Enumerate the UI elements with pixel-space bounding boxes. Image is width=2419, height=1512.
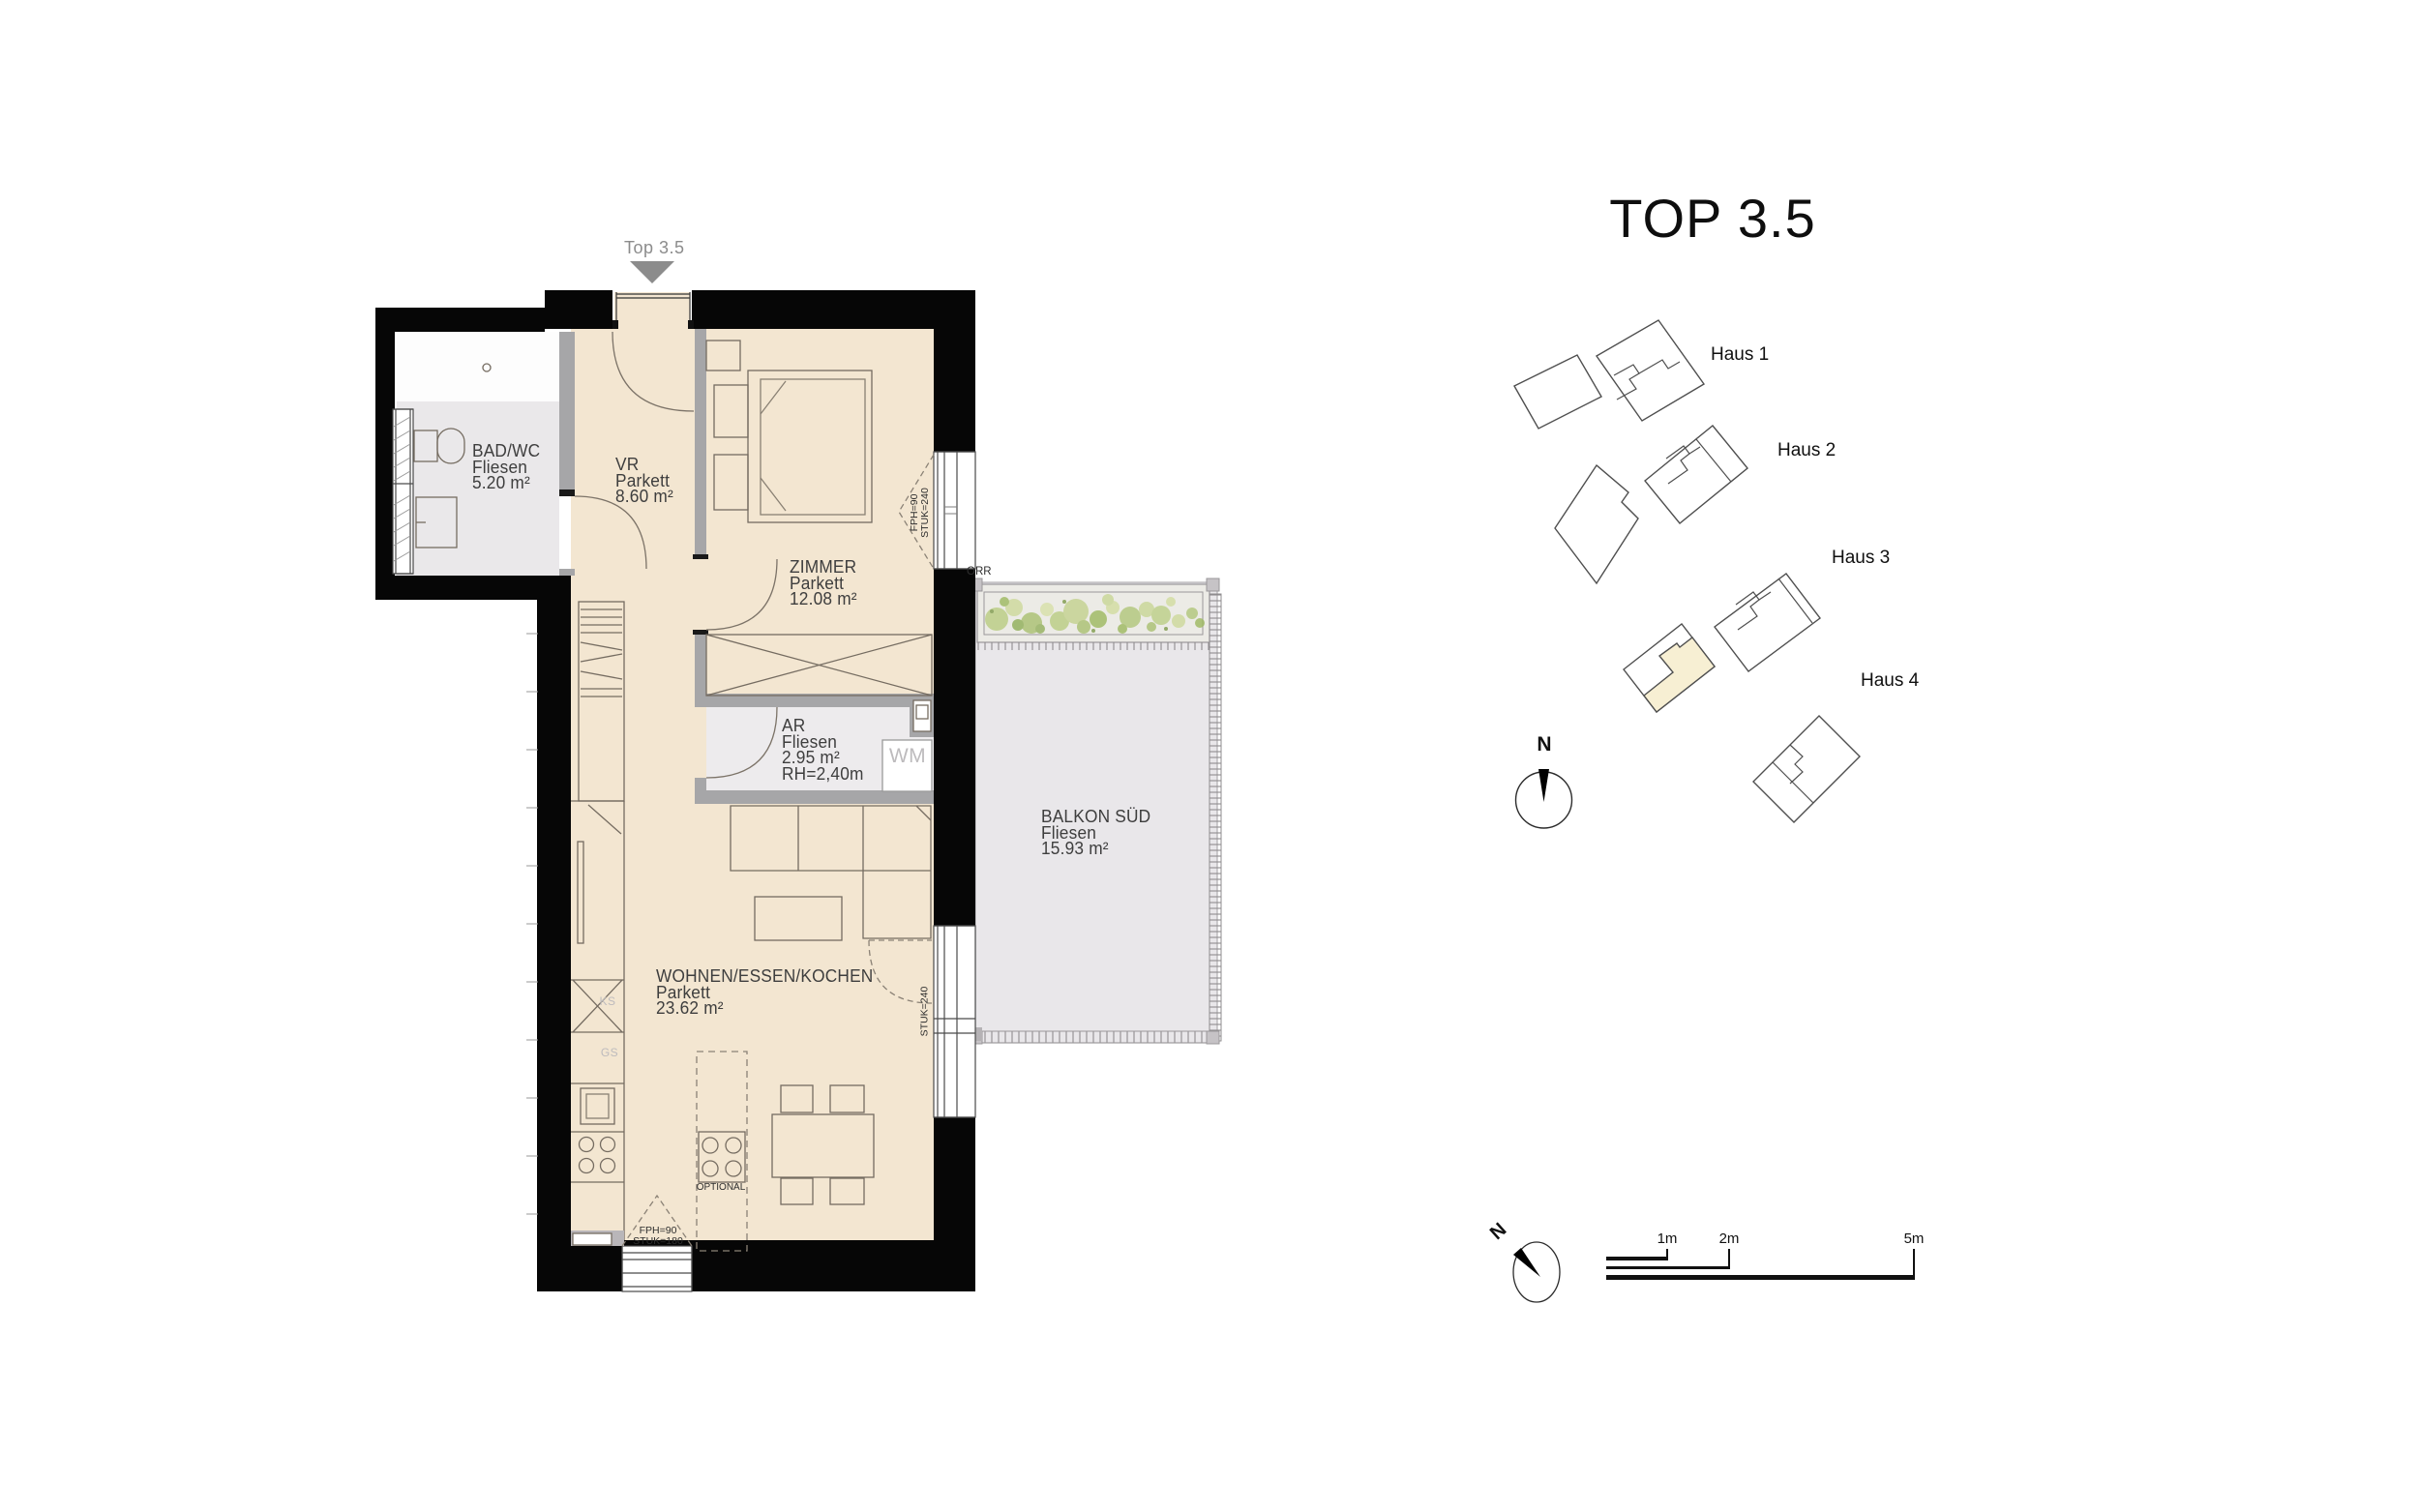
haus1-label: Haus 1 (1711, 344, 1769, 366)
room-area: 23.62 m² (656, 1000, 873, 1017)
site-building-haus2 (1645, 426, 1747, 523)
floorplan-page: Top 3.5 BAD/WC Fliesen 5.20 m² VR Parket… (0, 0, 2419, 1512)
unit-marker-label: Top 3.5 (624, 238, 685, 258)
facade-ticks (526, 634, 538, 1214)
room-label-zimmer: ZIMMER Parkett 12.08 m² (790, 559, 857, 608)
room-area: 15.93 m² (1041, 841, 1150, 857)
site-plan (1513, 320, 1915, 1302)
balcony-door-band (934, 926, 975, 1117)
scale-5m-label: 5m (1895, 1230, 1933, 1247)
balcony-railing (1209, 594, 1221, 1041)
balcony-bottom-ticks (975, 1031, 1211, 1043)
site-building-haus3 (1715, 574, 1820, 671)
site-building-haus4 (1753, 716, 1860, 822)
counter-end (571, 1230, 624, 1246)
south-window (622, 1246, 692, 1291)
dishwasher-label: GS (597, 1048, 622, 1058)
optional-island-label: OPTIONAL (693, 1182, 749, 1193)
unit-marker-arrow-icon (630, 261, 674, 283)
haus4-label: Haus 4 (1861, 670, 1919, 692)
room-label-ar: AR Fliesen 2.95 m² RH=2,40m (782, 718, 864, 782)
scale-2m-label: 2m (1710, 1230, 1748, 1247)
balcony-top-ticks (977, 642, 1209, 650)
bedroom-window (934, 452, 975, 569)
room-label-bad-wc: BAD/WC Fliesen 5.20 m² (472, 443, 540, 491)
washing-machine-label: WM (886, 751, 929, 761)
room-height: RH=2,40m (782, 766, 864, 783)
stuk-value: STUK=180 (627, 1236, 689, 1247)
balcony-door-annotation: STUK=240 (920, 983, 931, 1041)
haus2-label: Haus 2 (1777, 440, 1836, 461)
site-garage-haus2 (1555, 465, 1638, 583)
site-building-haus1 (1597, 320, 1704, 421)
room-area: 5.20 m² (472, 475, 540, 491)
site-garage-haus1 (1514, 355, 1601, 429)
room-area: 8.60 m² (615, 489, 673, 505)
scale-bar (1606, 1249, 1915, 1280)
compass-north-letter: N (1529, 733, 1560, 756)
haus3-label: Haus 3 (1832, 548, 1890, 569)
room-label-vr: VR Parkett 8.60 m² (615, 457, 673, 505)
fridge-label: KS (595, 996, 620, 1007)
compass-icon (1516, 769, 1572, 828)
room-label-wohnen: WOHNEN/ESSEN/KOCHEN Parkett 23.62 m² (656, 968, 873, 1017)
stuk-value: STUK=240 (920, 486, 931, 540)
room-label-balkon: BALKON SÜD Fliesen 15.93 m² (1041, 809, 1150, 857)
plan-drawing (0, 0, 2419, 1512)
bedroom-window-annotation: FPH=90 STUK=240 (910, 486, 931, 540)
ar-sink-icon (913, 700, 931, 731)
south-window-annotation: FPH=90 STUK=180 (627, 1226, 689, 1247)
orr-annotation: ORR (967, 567, 992, 578)
compass-icon-small (1513, 1242, 1560, 1302)
bath-window (393, 409, 413, 574)
room-area: 12.08 m² (790, 591, 857, 608)
scale-1m-label: 1m (1648, 1230, 1687, 1247)
site-title: TOP 3.5 (1558, 187, 1867, 250)
